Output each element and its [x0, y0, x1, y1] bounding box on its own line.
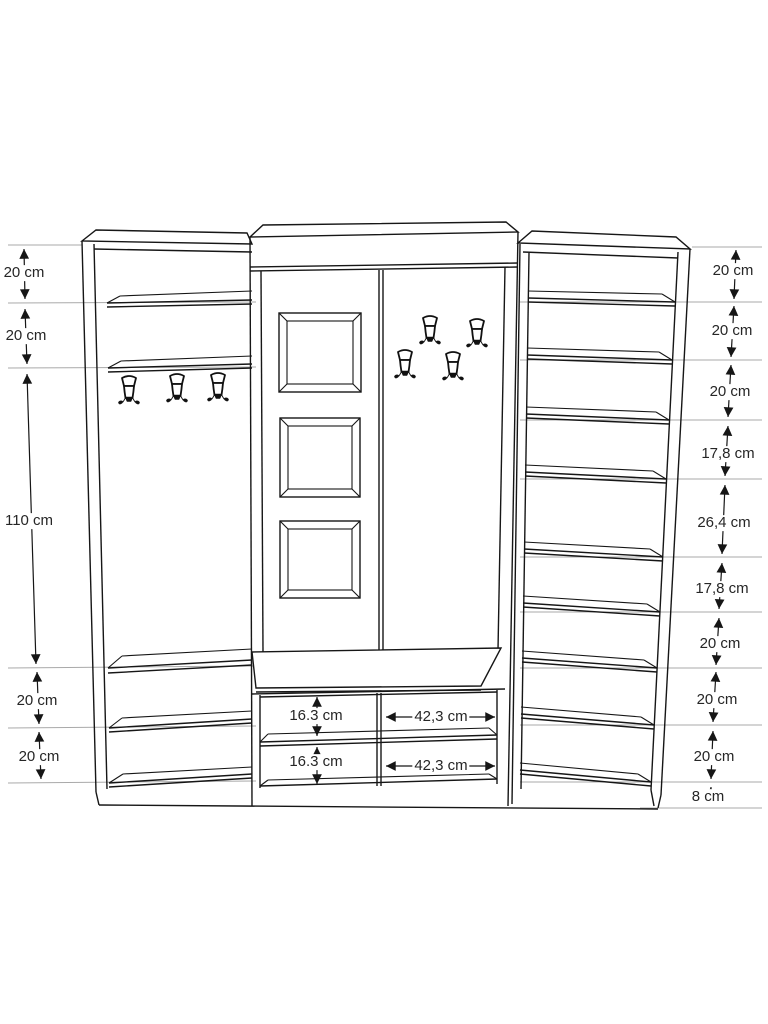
coat-hook-icon: [394, 350, 415, 378]
dim-right-2: 20 cm: [710, 323, 755, 339]
coat-hook-icon: [442, 352, 463, 380]
coat-hook-icon: [419, 316, 440, 344]
dim-left-4: 20 cm: [15, 693, 60, 709]
mirror-frame: [280, 418, 360, 497]
dim-bench-row1-depth: 16.3 cm: [287, 708, 344, 724]
bench-seat: [252, 648, 501, 692]
dim-right-6: 17,8 cm: [693, 581, 750, 597]
dimension-arrows: [24, 249, 736, 805]
coat-hook-icon: [207, 373, 228, 401]
dim-right-8: 20 cm: [695, 692, 740, 708]
mirror-frame: [280, 521, 360, 598]
dim-right-5: 26,4 cm: [695, 515, 752, 531]
dim-right-1: 20 cm: [711, 263, 756, 279]
mirror-frame: [279, 313, 361, 392]
dim-right-9: 20 cm: [692, 749, 737, 765]
coat-hook-icon: [466, 319, 487, 347]
wardrobe-line-art: [0, 0, 768, 1024]
coat-hook-icon: [166, 374, 187, 402]
dim-bench-row1-width: 42,3 cm: [412, 709, 469, 725]
dim-right-4: 17,8 cm: [699, 446, 756, 462]
dim-right-7: 20 cm: [698, 636, 743, 652]
dim-left-2: 20 cm: [4, 328, 49, 344]
left-cabinet-drawing: [82, 230, 252, 805]
dim-right-3: 20 cm: [708, 384, 753, 400]
dim-left-5: 20 cm: [17, 749, 62, 765]
extension-lines: [8, 245, 762, 808]
dim-left-3: 110 cm: [3, 513, 55, 529]
dim-left-1: 20 cm: [2, 265, 47, 281]
dim-bench-row2-width: 42,3 cm: [412, 758, 469, 774]
plinth-bottom-line: [99, 805, 658, 809]
right-cabinet-drawing: [512, 231, 690, 808]
dim-right-10: 8 cm: [690, 789, 727, 805]
coat-hook-icon: [118, 376, 139, 404]
drawing-canvas: 20 cm 20 cm 110 cm 20 cm 20 cm 20 cm 20 …: [0, 0, 768, 1024]
dim-bench-row2-depth: 16.3 cm: [287, 754, 344, 770]
